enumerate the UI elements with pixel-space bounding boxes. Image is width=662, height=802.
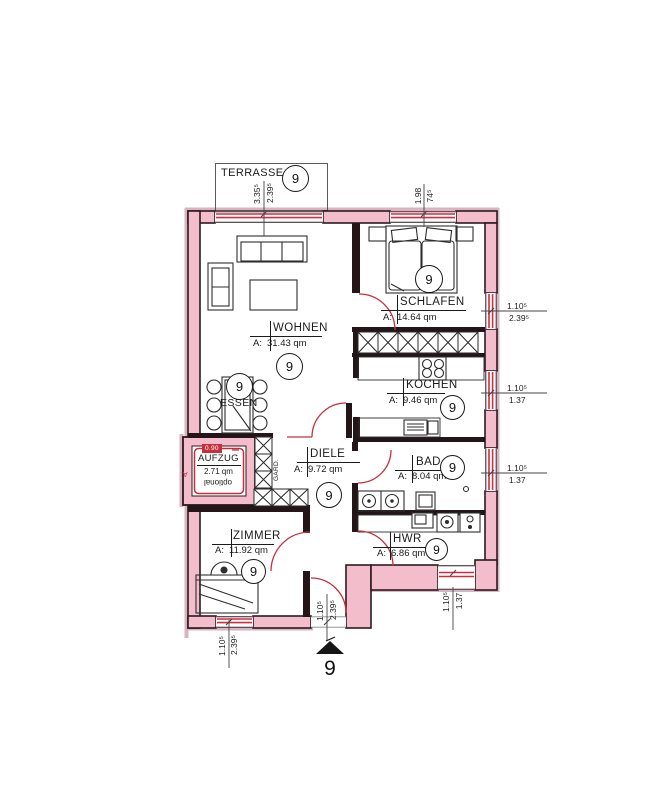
dim-right-mid-width: 1.10⁵ [507, 383, 527, 393]
dim-terrace-depth: 2.39⁵ [265, 183, 275, 203]
label-rule [381, 310, 466, 311]
entrance-unit-number: 9 [324, 657, 336, 681]
elevator-note: optional [204, 478, 232, 486]
room-label-bad: BAD [416, 457, 441, 469]
dim-right-low-width: 1.10⁵ [507, 463, 527, 473]
room-area-zimmer: A:11.92 qm [215, 546, 268, 556]
room-label-schlafen: SCHLAFEN [400, 297, 465, 309]
dim-entrance-width: 1.10⁵ [315, 601, 325, 621]
dim-right-top-width: 1.10⁵ [507, 301, 527, 311]
room-label-diele: DIELE [310, 449, 345, 461]
room-area-kochen: A:9.46 qm [389, 396, 437, 406]
utility-fixtures [358, 513, 480, 532]
elevator-side-label: A: [181, 470, 188, 477]
room-area-wohnen: A:31.43 qm [253, 339, 307, 349]
bath-fixtures [358, 487, 469, 512]
unit-tag-diele: 9 [316, 482, 342, 508]
unit-tag-schlafen: 9 [415, 265, 443, 293]
sofa [237, 236, 307, 262]
dim-hwr-window-height: 1.37 [454, 593, 464, 610]
dim-right-mid-height: 1.37 [509, 395, 526, 405]
dim-right-low-height: 1.37 [509, 475, 526, 485]
dim-schlafen-window-width: 1.98 [413, 188, 423, 205]
unit-tag-zimmer: 9 [241, 559, 266, 584]
floorplan-drawing [0, 0, 662, 802]
room-label-kochen: KOCHEN [406, 380, 458, 392]
room-area-schlafen: A:14.64 qm [383, 313, 437, 323]
dim-zimmer-window-width: 1.10⁵ [217, 636, 227, 656]
dim-zimmer-window-height: 2.39⁵ [229, 635, 239, 655]
entrance-marker [316, 637, 344, 654]
coffee-table [250, 280, 297, 310]
unit-tag-wohnen: 9 [276, 353, 303, 380]
armchair [208, 263, 233, 310]
dim-schlafen-window-sill: 74⁵ [425, 190, 435, 203]
room-label-zimmer: ZIMMER [233, 531, 281, 543]
elevator-door-tag: 0.90 [202, 444, 222, 453]
label-rule [387, 393, 445, 394]
room-area-bad: A:8.04 qm [398, 472, 446, 482]
label-rule [197, 465, 241, 466]
unit-tag-hwr: 9 [425, 538, 448, 561]
label-rule [250, 336, 322, 337]
dim-hwr-window-width: 1.10⁵ [441, 592, 451, 612]
unit-tag-essen: 9 [226, 373, 253, 400]
room-area-hwr: A:6.86 qm [377, 549, 425, 559]
room-label-hwr: HWR [393, 534, 422, 546]
room-area-diele: A:9.72 qm [294, 465, 342, 475]
terrace-label: TERRASSE [221, 168, 284, 179]
room-label-essen: ESSEN [220, 398, 258, 409]
dim-terrace-width: 3.35⁵ [252, 184, 262, 204]
elevator-label: AUFZUG [198, 454, 239, 464]
dim-right-top-height: 2.39⁵ [509, 313, 529, 323]
floorplan-page: TERRASSE 9 WOHNEN A:31.43 qm 9 SCHLAFEN … [0, 0, 662, 802]
unit-tag-terrace: 9 [282, 165, 309, 192]
room-label-wohnen: WOHNEN [273, 323, 328, 335]
unit-tag-kochen: 9 [440, 395, 465, 420]
unit-tag-bad: 9 [440, 455, 465, 480]
elevator-area: 2.71 qm [204, 468, 233, 476]
wardrobe-label: GARD. [274, 459, 281, 481]
dim-entrance-height: 2.39⁵ [328, 600, 338, 620]
